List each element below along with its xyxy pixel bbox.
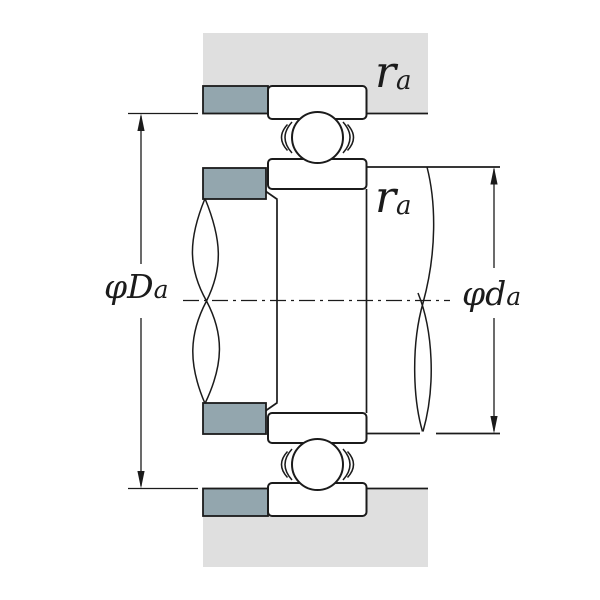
bearing-mounting-diagram: φDa φda ra ra (0, 0, 600, 600)
chamfer-diagonal-bottom (266, 403, 278, 411)
raceway-groove-right (343, 122, 354, 153)
arrowhead-da-up (490, 167, 497, 185)
shaft-shoulder-bottom (203, 403, 266, 434)
chamfer-diagonal-top (266, 192, 278, 200)
housing-shoulder-bottom (203, 489, 268, 517)
bearing-section-top (268, 86, 367, 189)
arrowhead-Da-up (137, 114, 144, 132)
label-fillet-radius-shaft: ra (375, 172, 412, 223)
label-housing-abutment-diameter: φDa (104, 267, 168, 306)
label-shaft-abutment-diameter: φda (462, 274, 521, 313)
raceway-groove-left (282, 122, 293, 153)
arrowhead-Da-down (137, 471, 144, 489)
ball (292, 112, 343, 163)
housing-shoulder-top (203, 86, 268, 114)
arrowhead-da-down (490, 416, 497, 434)
bearing-section-bottom (268, 413, 367, 516)
diagram-canvas: φDa φda ra ra (0, 0, 600, 600)
shaft-shoulder-top (203, 168, 266, 199)
